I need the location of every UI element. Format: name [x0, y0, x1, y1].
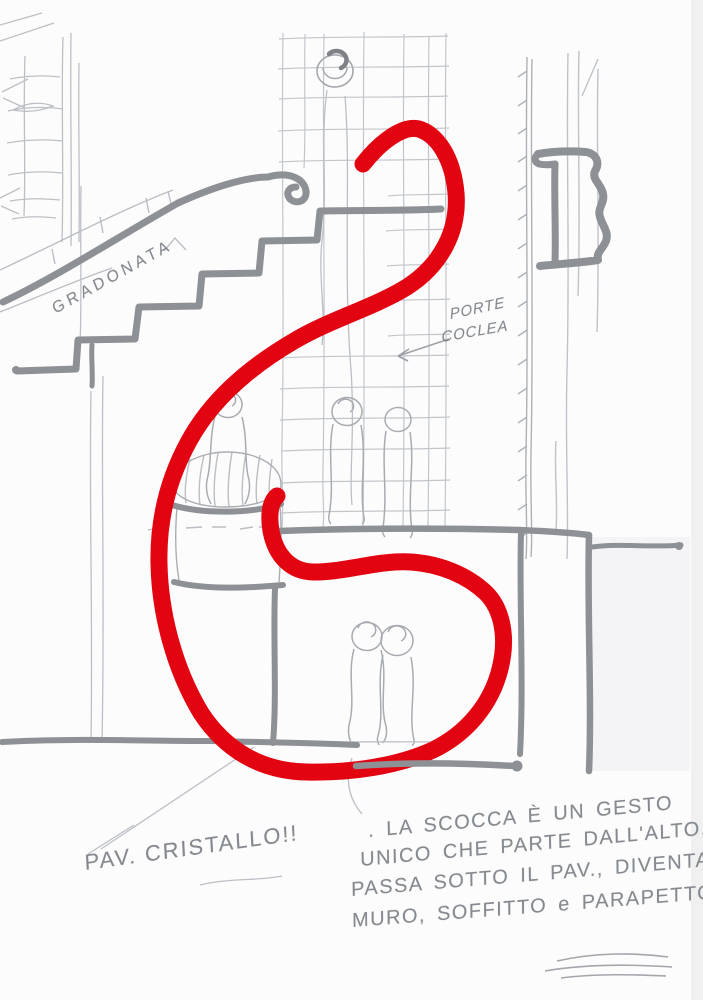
sketch-page: GRADONATA PORTE COCLEA PAV. CRISTALLO!! … [0, 0, 703, 1000]
right-ladder-guide [518, 51, 598, 559]
top-left-scaffold [0, 13, 79, 246]
wall-niche-outline [535, 151, 607, 266]
note-flourish [545, 954, 672, 978]
spiral-stair-symbol [317, 51, 353, 505]
marker-gray-structure [2, 151, 683, 771]
